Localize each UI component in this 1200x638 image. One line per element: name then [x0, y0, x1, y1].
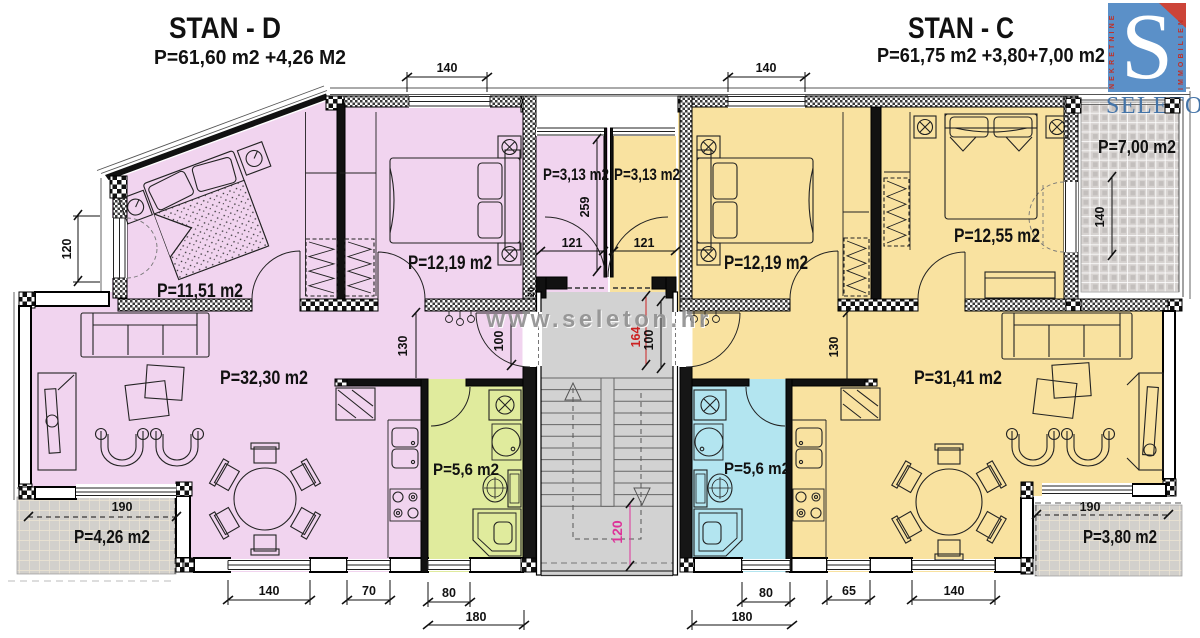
svg-text:P=11,51 m2: P=11,51 m2: [157, 281, 243, 302]
svg-text:130: 130: [827, 337, 841, 358]
svg-text:140: 140: [944, 584, 965, 598]
svg-text:140: 140: [756, 61, 777, 75]
svg-text:P=12,55 m2: P=12,55 m2: [954, 226, 1040, 247]
svg-text:130: 130: [396, 336, 410, 357]
svg-text:P=5,6 m2: P=5,6 m2: [724, 459, 790, 478]
svg-text:180: 180: [466, 610, 487, 624]
svg-text:P=12,19 m2: P=12,19 m2: [724, 253, 808, 274]
svg-text:P=3,13 m2: P=3,13 m2: [614, 165, 680, 184]
svg-text:IMMOBILIEN: IMMOBILIEN: [1178, 17, 1185, 90]
svg-text:80: 80: [442, 586, 456, 600]
svg-text:120: 120: [60, 239, 74, 260]
svg-text:NEKRETNINE: NEKRETNINE: [1109, 12, 1116, 89]
svg-text:121: 121: [634, 236, 655, 250]
svg-text:140: 140: [437, 61, 458, 75]
svg-text:P=31,41 m2: P=31,41 m2: [914, 368, 1002, 389]
svg-text:P=61,60 m2 +4,26 M2: P=61,60 m2 +4,26 M2: [154, 47, 346, 69]
svg-text:180: 180: [732, 610, 753, 624]
svg-text:190: 190: [1080, 500, 1101, 514]
svg-text:P=4,26 m2: P=4,26 m2: [74, 527, 150, 547]
svg-text:70: 70: [362, 584, 376, 598]
svg-text:190: 190: [112, 500, 133, 514]
svg-text:P=5,6 m2: P=5,6 m2: [433, 460, 499, 479]
svg-text:20: 20: [526, 287, 536, 297]
svg-text:www.seleton.hr: www.seleton.hr: [485, 306, 711, 333]
svg-text:121: 121: [562, 236, 583, 250]
svg-text:SELETON: SELETON: [1106, 93, 1200, 119]
svg-text:STAN - D: STAN - D: [169, 12, 281, 45]
svg-text:P=7,00 m2: P=7,00 m2: [1098, 137, 1176, 157]
svg-text:P=32,30 m2: P=32,30 m2: [220, 368, 308, 389]
svg-text:STAN - C: STAN - C: [908, 12, 1014, 45]
svg-text:P=3,80 m2: P=3,80 m2: [1083, 527, 1157, 547]
svg-text:P=3,13 m2: P=3,13 m2: [543, 165, 609, 184]
svg-text:P=12,19 m2: P=12,19 m2: [408, 253, 492, 274]
svg-text:140: 140: [259, 584, 280, 598]
svg-text:120: 120: [609, 520, 625, 544]
svg-text:P=61,75 m2 +3,80+7,00 m2: P=61,75 m2 +3,80+7,00 m2: [877, 45, 1105, 67]
svg-text:100: 100: [492, 331, 506, 352]
svg-text:140: 140: [1093, 207, 1107, 228]
svg-text:65: 65: [842, 584, 856, 598]
svg-text:80: 80: [759, 586, 773, 600]
svg-text:S: S: [1121, 0, 1173, 99]
svg-text:259: 259: [578, 197, 592, 218]
